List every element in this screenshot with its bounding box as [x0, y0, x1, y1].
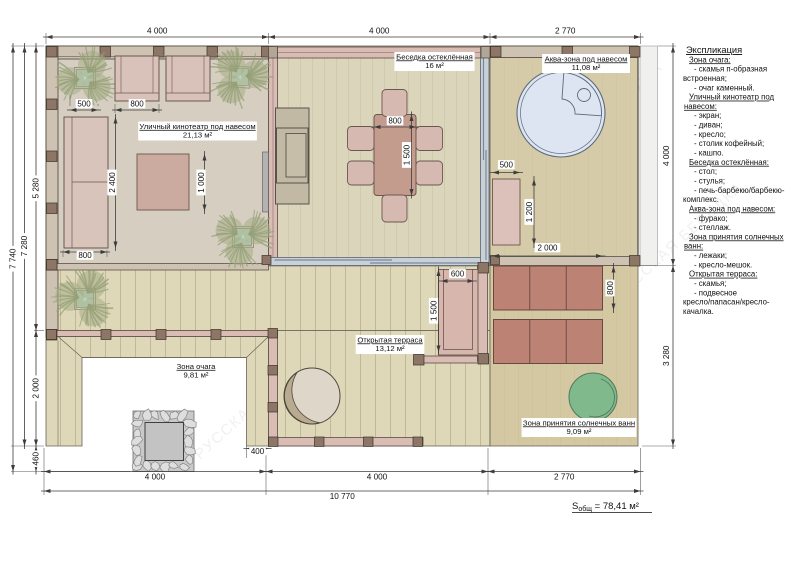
svg-text:7 740: 7 740: [9, 248, 18, 269]
svg-text:- скамья п-образная: - скамья п-образная: [694, 65, 767, 74]
svg-text:Открытая терраса: Открытая терраса: [357, 335, 423, 344]
svg-text:800: 800: [78, 251, 92, 260]
svg-text:- стеллаж.: - стеллаж.: [694, 223, 731, 232]
svg-text:встроенная;: встроенная;: [683, 74, 727, 83]
svg-text:- кашпо.: - кашпо.: [694, 149, 724, 158]
svg-text:4 000: 4 000: [369, 27, 390, 36]
svg-text:7 280: 7 280: [20, 235, 29, 256]
svg-text:- лежаки;: - лежаки;: [694, 251, 727, 260]
svg-text:ванн:: ванн:: [684, 242, 703, 251]
svg-text:600: 600: [451, 270, 465, 279]
svg-text:Зона принятия солнечных ванн: Зона принятия солнечных ванн: [523, 418, 635, 427]
svg-text:- очаг каменный.: - очаг каменный.: [694, 83, 755, 92]
svg-text:2 770: 2 770: [555, 27, 576, 36]
svg-text:- скамья;: - скамья;: [694, 279, 726, 288]
svg-text:Экспликация: Экспликация: [686, 45, 742, 55]
svg-text:- печь-барбекю/барбекю-: - печь-барбекю/барбекю-: [694, 186, 785, 195]
svg-text:Открытая терраса:: Открытая терраса:: [689, 270, 757, 279]
svg-text:навесом:: навесом:: [684, 102, 717, 111]
svg-text:Уличный кинотеатр под навесом: Уличный кинотеатр под навесом: [139, 122, 255, 131]
svg-text:10 770: 10 770: [330, 492, 355, 501]
svg-text:1 500: 1 500: [429, 300, 438, 321]
svg-text:Зона принятия солнечных: Зона принятия солнечных: [689, 232, 784, 241]
svg-text:- диван;: - диван;: [694, 121, 723, 130]
svg-text:2 770: 2 770: [554, 473, 575, 482]
svg-text:2 000: 2 000: [32, 378, 41, 399]
svg-text:800: 800: [606, 281, 615, 295]
svg-text:16 м²: 16 м²: [425, 61, 444, 70]
svg-text:Аква-зона под навесом:: Аква-зона под навесом:: [689, 204, 775, 213]
svg-text:Уличный кинотеатр под: Уличный кинотеатр под: [689, 93, 775, 102]
svg-text:2 400: 2 400: [108, 172, 117, 193]
svg-text:1 000: 1 000: [197, 172, 206, 193]
svg-text:1 200: 1 200: [525, 201, 534, 222]
svg-text:- кресло-мешок.: - кресло-мешок.: [694, 260, 752, 269]
svg-text:13,12 м²: 13,12 м²: [375, 344, 405, 353]
svg-text:Зона очага:: Зона очага:: [689, 55, 731, 64]
svg-text:- фурако;: - фурако;: [694, 214, 728, 223]
svg-text:Зона очага: Зона очага: [177, 362, 217, 371]
svg-text:21,13 м²: 21,13 м²: [183, 131, 213, 140]
svg-text:Аква-зона под навесом: Аква-зона под навесом: [545, 54, 628, 63]
svg-text:1 500: 1 500: [402, 144, 411, 165]
svg-text:4 000: 4 000: [367, 473, 388, 482]
svg-text:- стулья;: - стулья;: [694, 177, 725, 186]
svg-text:400: 400: [251, 447, 265, 456]
svg-text:9,09 м²: 9,09 м²: [567, 427, 592, 436]
svg-text:4 000: 4 000: [147, 27, 168, 36]
svg-text:4 000: 4 000: [662, 145, 671, 166]
svg-text:9,81 м²: 9,81 м²: [184, 371, 209, 380]
svg-text:2 000: 2 000: [537, 244, 558, 253]
svg-text:- кресло;: - кресло;: [694, 130, 726, 139]
svg-text:4 000: 4 000: [145, 473, 166, 482]
svg-text:кресло/папасан/кресло-: кресло/папасан/кресло-: [683, 298, 770, 307]
svg-text:- экран;: - экран;: [694, 111, 721, 120]
svg-text:- стол;: - стол;: [694, 167, 717, 176]
svg-text:800: 800: [388, 117, 402, 126]
svg-text:5 280: 5 280: [32, 178, 41, 199]
svg-text:Беседка остеклённая: Беседка остеклённая: [396, 52, 473, 61]
svg-text:500: 500: [500, 161, 514, 170]
svg-text:- столик кофейный;: - столик кофейный;: [694, 139, 764, 148]
svg-text:комплекс.: комплекс.: [683, 195, 719, 204]
svg-text:11,08 м²: 11,08 м²: [572, 63, 601, 72]
svg-text:качалка.: качалка.: [683, 307, 714, 316]
svg-text:800: 800: [130, 100, 144, 109]
svg-text:- подвесное: - подвесное: [694, 288, 737, 297]
svg-text:460: 460: [32, 451, 41, 465]
svg-text:3 280: 3 280: [662, 345, 671, 366]
svg-text:Беседка остеклённая:: Беседка остеклённая:: [689, 158, 769, 167]
svg-text:500: 500: [77, 100, 91, 109]
